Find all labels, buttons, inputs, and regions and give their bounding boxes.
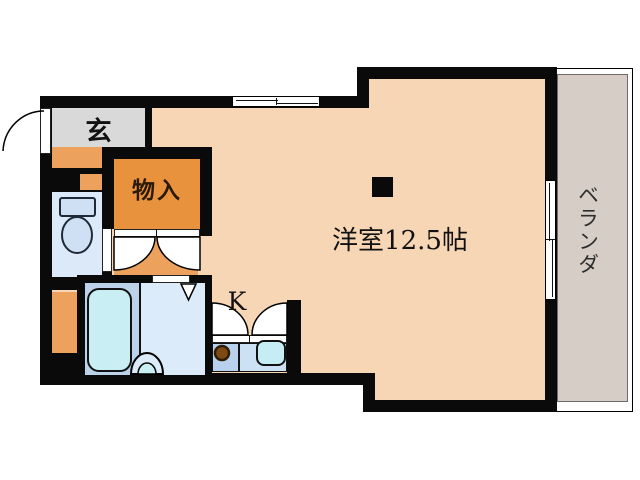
balcony-label: ベランダ [572, 178, 602, 282]
storage-label: 物入 [114, 170, 200, 206]
western-room-label: 洋室12.5帖 [320, 222, 480, 254]
kitchen-sink [257, 341, 285, 365]
toilet-tank [60, 198, 95, 216]
closet-door-swing-right [157, 237, 200, 270]
floorplan-canvas: 玄 物入 洋室12.5帖 K ベランダ [0, 0, 640, 480]
kitchen-label: K [222, 288, 252, 314]
bathtub [88, 289, 131, 371]
closet-door-swing-left [114, 237, 155, 270]
gas-burner [215, 346, 229, 360]
toilet-bowl [62, 217, 92, 253]
folding-door-marker [181, 284, 196, 300]
kitchen-door-swing-right [252, 303, 287, 335]
entry-door-swing [3, 111, 44, 151]
entrance-label: 玄 [52, 112, 145, 146]
